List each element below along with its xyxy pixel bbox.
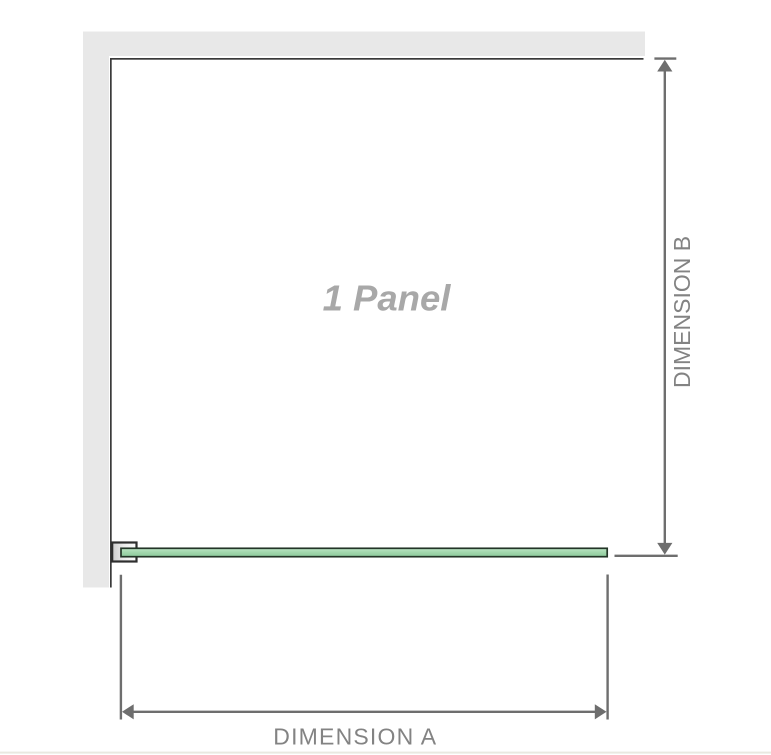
svg-text:DIMENSION B: DIMENSION B bbox=[669, 236, 695, 388]
svg-text:1 Panel: 1 Panel bbox=[323, 278, 452, 319]
svg-text:DIMENSION A: DIMENSION A bbox=[273, 724, 437, 750]
